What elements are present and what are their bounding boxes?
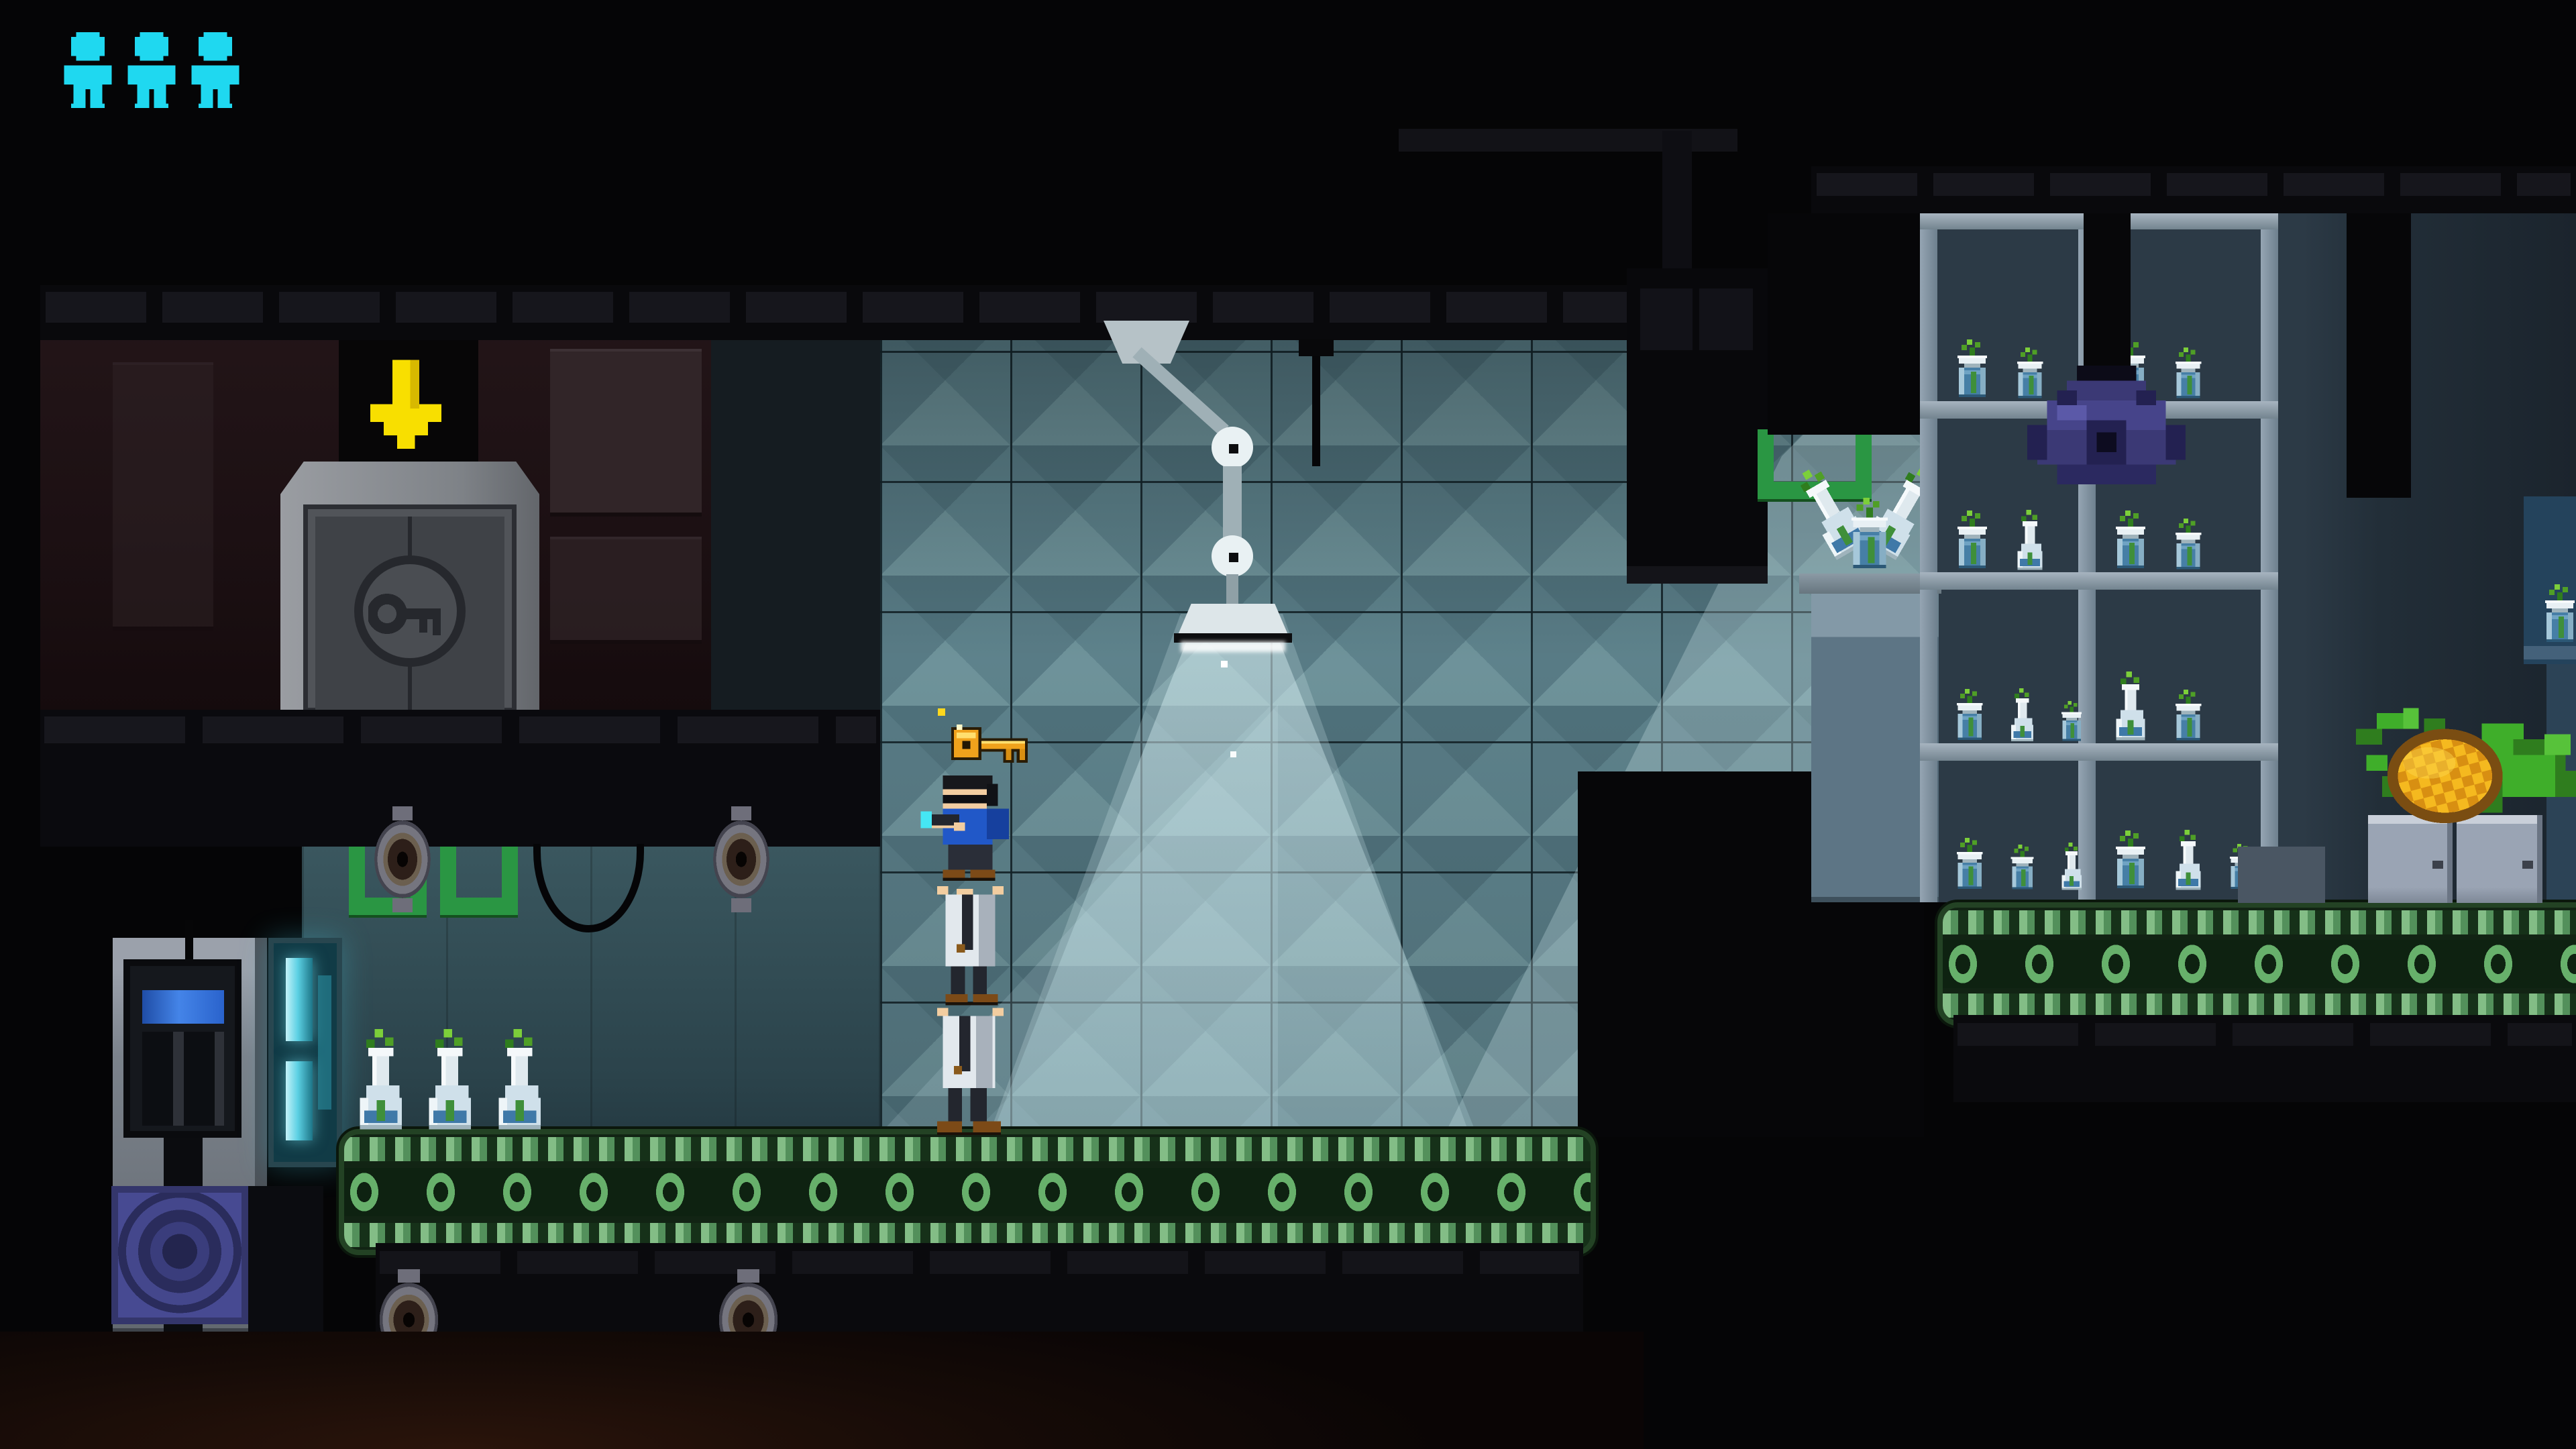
life-icon xyxy=(125,32,178,113)
specimen-jar xyxy=(1951,838,1988,892)
cabinet-sliver xyxy=(2238,847,2325,903)
black-filler xyxy=(1768,213,1924,435)
wall-panel xyxy=(550,349,702,517)
shelf-cell xyxy=(1940,763,2086,892)
flask xyxy=(350,1029,412,1134)
life-icon xyxy=(189,32,241,113)
conveyor-belt-right xyxy=(1937,902,2576,1026)
shadow-wall-band xyxy=(711,315,880,711)
person-icon xyxy=(62,32,114,108)
lamp-joint-bolt xyxy=(1229,444,1238,453)
conveyor-belt-main xyxy=(339,1129,1596,1255)
belt-support xyxy=(1953,1015,2576,1102)
wall-panel xyxy=(550,537,702,644)
specimen-jar xyxy=(1951,689,1988,743)
person-icon xyxy=(125,32,178,108)
edge-cabinet-board xyxy=(2524,646,2576,659)
lamp-glow xyxy=(1181,641,1285,652)
flask xyxy=(2057,843,2086,892)
door-key-emblem xyxy=(354,555,466,667)
game-viewport[interactable] xyxy=(0,0,2576,1449)
lamp-arm-lower xyxy=(1223,466,1242,540)
belt-support xyxy=(376,1243,1583,1332)
specimen-jar xyxy=(2538,584,2576,646)
flask xyxy=(2109,672,2152,743)
green-wall-handle xyxy=(440,847,518,915)
specimen-jar xyxy=(2109,511,2152,572)
flask xyxy=(2169,830,2207,892)
specimen-jar xyxy=(2057,701,2086,743)
wall-panel xyxy=(113,362,213,631)
hatch-panel xyxy=(111,1186,248,1324)
specimen-jar xyxy=(1951,339,1994,401)
exit-door[interactable] xyxy=(280,462,539,712)
hanging-duct-box xyxy=(1627,268,1768,584)
flask xyxy=(419,1029,481,1134)
monitor xyxy=(123,959,241,1138)
hanging-pipe xyxy=(2347,213,2411,498)
monitor-cable xyxy=(185,920,193,963)
lamp-shade xyxy=(1178,604,1288,635)
specimen-jar xyxy=(2109,830,2152,892)
ceiling-beam xyxy=(40,285,1811,340)
life-icon xyxy=(62,32,114,113)
cabinet-light xyxy=(286,1061,313,1140)
pulley-wheel xyxy=(704,808,778,910)
specimen-jar xyxy=(2169,690,2207,744)
lamp-stem xyxy=(1226,574,1238,608)
security-camera-dome[interactable] xyxy=(2027,366,2186,494)
dust-speck xyxy=(1230,751,1236,757)
glowing-cabinet xyxy=(268,938,342,1167)
camera-pole xyxy=(2084,213,2131,381)
lamp xyxy=(1073,309,1355,657)
shelf-board xyxy=(1920,743,2278,761)
hanging-rod xyxy=(1662,131,1692,275)
shelf-cell xyxy=(2098,592,2269,743)
lives-indicator xyxy=(62,32,241,113)
pulley-wheel xyxy=(366,808,439,910)
edge-cabinet-cell xyxy=(2528,520,2576,646)
dark-block xyxy=(248,1186,323,1334)
specimen-jar xyxy=(2169,519,2207,573)
lamp-arm-upper xyxy=(1132,347,1228,436)
lamp-joint-bolt xyxy=(1229,553,1238,562)
dust-speck xyxy=(1221,661,1228,667)
shelf-post xyxy=(1920,213,1937,902)
shelf-board xyxy=(1920,572,2278,590)
specimen-jar xyxy=(1951,511,1994,572)
monitor-screen-bar xyxy=(142,990,224,1024)
player-stack[interactable] xyxy=(920,773,1042,1135)
shelf-cell xyxy=(1940,592,2086,743)
pineapple xyxy=(2356,708,2576,834)
flask xyxy=(2011,510,2049,572)
cabinet-light-dim xyxy=(318,975,331,1110)
specimen-jar xyxy=(2006,845,2039,892)
monitor-vents xyxy=(142,1032,224,1126)
ledge-jar xyxy=(1843,498,1896,573)
person-icon xyxy=(189,32,241,108)
belt-flask-group xyxy=(339,1013,551,1134)
flask xyxy=(2006,688,2039,743)
specimen-jar xyxy=(1843,498,1896,573)
ceiling-beam-right xyxy=(1811,166,2576,213)
exit-arrow-marker xyxy=(370,359,441,449)
flask xyxy=(488,1029,551,1134)
floor-glow xyxy=(0,1332,1644,1449)
key-particle xyxy=(938,708,945,716)
key-icon[interactable] xyxy=(951,724,1028,763)
cabinet-light xyxy=(286,958,313,1041)
